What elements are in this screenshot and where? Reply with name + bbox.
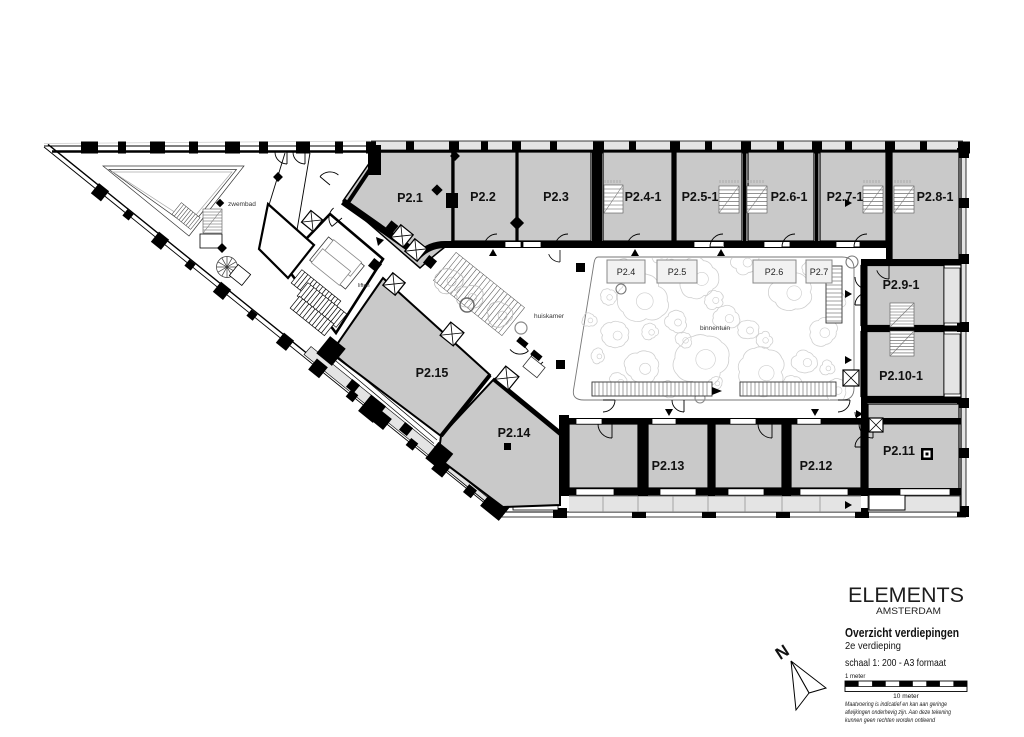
svg-text:P2.14: P2.14 bbox=[498, 426, 531, 440]
svg-text:zwembad: zwembad bbox=[228, 201, 256, 208]
svg-text:P2.1: P2.1 bbox=[397, 191, 423, 205]
svg-text:P2.4: P2.4 bbox=[617, 267, 636, 277]
svg-text:ELEMENTS: ELEMENTS bbox=[848, 584, 964, 607]
svg-text:P2.11: P2.11 bbox=[883, 444, 915, 458]
svg-text:P2.12: P2.12 bbox=[800, 459, 833, 473]
svg-text:10 meter: 10 meter bbox=[893, 693, 919, 700]
svg-text:P2.6: P2.6 bbox=[765, 267, 784, 277]
svg-text:Overzicht verdiepingen: Overzicht verdiepingen bbox=[845, 626, 959, 640]
svg-text:P2.4-1: P2.4-1 bbox=[625, 190, 662, 204]
svg-text:liften: liften bbox=[358, 283, 370, 289]
svg-text:P2.8-1: P2.8-1 bbox=[917, 190, 954, 204]
svg-text:P2.6-1: P2.6-1 bbox=[771, 190, 808, 204]
svg-text:binnentuin: binnentuin bbox=[700, 325, 730, 332]
svg-text:P2.10-1: P2.10-1 bbox=[879, 369, 923, 383]
svg-text:P2.2: P2.2 bbox=[470, 190, 496, 204]
svg-text:huiskamer: huiskamer bbox=[534, 313, 565, 320]
svg-text:P2.7: P2.7 bbox=[810, 267, 829, 277]
svg-text:schaal 1: 200 - A3 formaat: schaal 1: 200 - A3 formaat bbox=[845, 657, 946, 669]
svg-text:P2.3: P2.3 bbox=[543, 190, 569, 204]
svg-text:P2.5-1: P2.5-1 bbox=[682, 190, 719, 204]
svg-text:Maatvoering is indicatief en k: Maatvoering is indicatief en kan aan ger… bbox=[845, 701, 947, 708]
svg-text:P2.13: P2.13 bbox=[652, 459, 685, 473]
svg-text:P2.5: P2.5 bbox=[668, 267, 687, 277]
svg-text:afwijkingen onderhevig zijn. A: afwijkingen onderhevig zijn. Aan deze te… bbox=[845, 709, 951, 716]
svg-text:1 meter: 1 meter bbox=[845, 674, 865, 680]
svg-text:kunnen geen rechten worden ont: kunnen geen rechten worden ontleend bbox=[845, 717, 935, 724]
svg-text:P2.9-1: P2.9-1 bbox=[883, 278, 920, 292]
svg-text:P2.15: P2.15 bbox=[416, 366, 449, 380]
svg-text:AMSTERDAM: AMSTERDAM bbox=[876, 606, 941, 616]
svg-text:2e verdieping: 2e verdieping bbox=[845, 640, 901, 652]
